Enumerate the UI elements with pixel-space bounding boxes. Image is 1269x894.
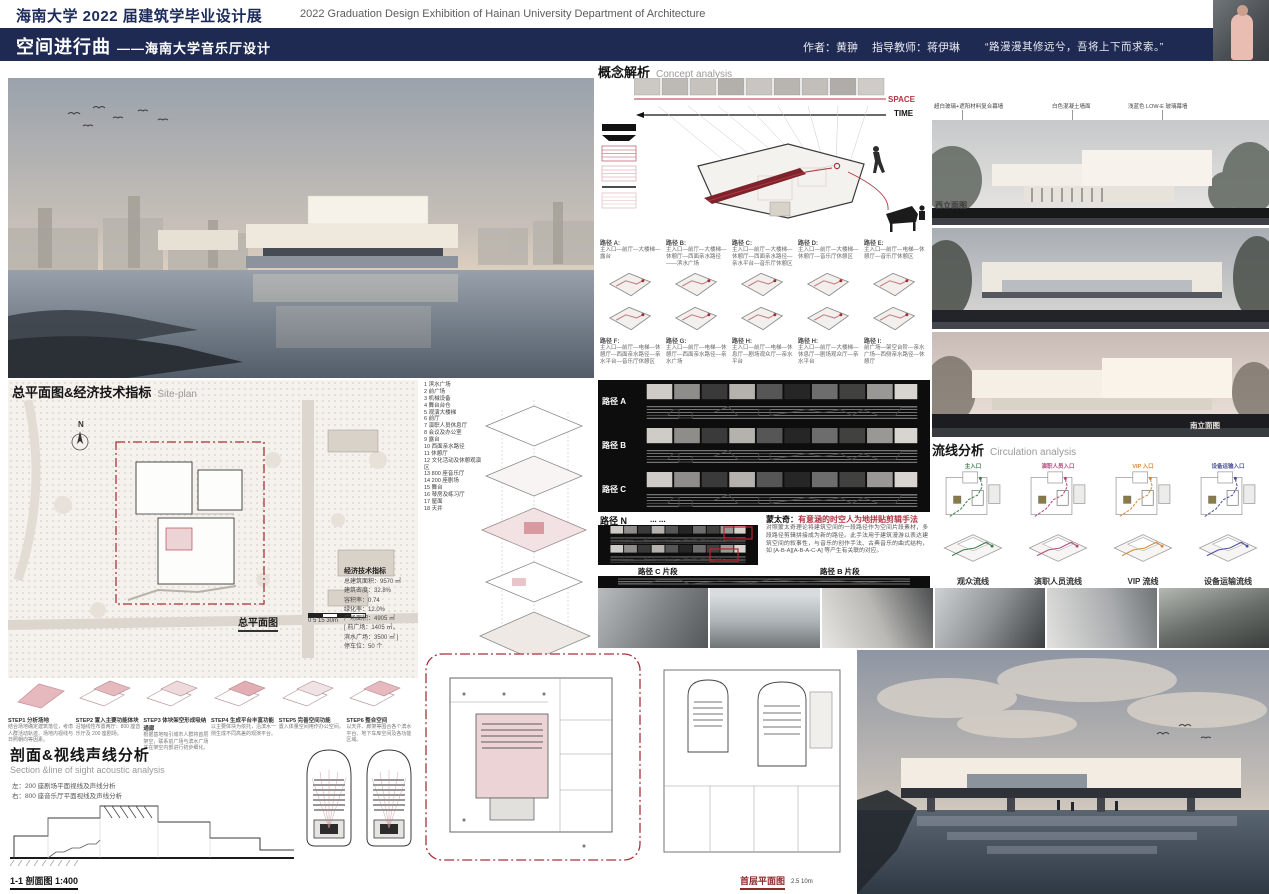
- project-subtitle: ——海南大学音乐厅设计: [117, 41, 271, 56]
- path-item-h2: 路径 H: 主入口—前厅—大楼梯—休息厅—剧场观众厅—亲水平台: [798, 336, 860, 366]
- massing-step-5: STEP5 完善空间功能 置入体量空间用作办公空间。: [279, 676, 345, 744]
- first-floor-plan: [420, 650, 648, 870]
- circulation-title-en: Circulation analysis: [990, 447, 1076, 458]
- circulation-audience: 主入口 观众流线: [932, 462, 1014, 587]
- path-n-montage: 路径 N ... ... 蒙太奇：有意涵的时空人为地拼贴剪辑手法 对照蒙太奇理论…: [598, 514, 930, 588]
- first-floor-scale: 2.5 10m: [791, 879, 813, 885]
- advisor-label: 指导教师：蒋伊琳: [872, 39, 960, 55]
- motto-quote: “路漫漫其修远兮，吾将上下而求索。”: [985, 39, 1164, 54]
- step-desc: 以天井、廊架等围合各个滨水平台、地下车库空间及各功能区域。: [346, 724, 412, 744]
- exploded-axon-drawing: [472, 390, 596, 674]
- path-n-panel: [598, 525, 758, 565]
- concept-legend-glyphs: [600, 124, 640, 216]
- sequence-strip: [638, 384, 926, 422]
- concert-hall-plan-acoustic: [362, 744, 416, 866]
- siteplan-section: 总平面图&经济技术指标Site-plan N: [8, 380, 418, 678]
- concept-diagram: [638, 106, 930, 236]
- massing-thumb: [143, 676, 205, 710]
- siteplan-caption: 总平面图: [238, 614, 278, 632]
- sequence-row-b: 路径 B: [598, 426, 930, 468]
- step-label: STEP2 置入主要功能体块: [76, 716, 142, 724]
- montage-subtitle: 有意涵的时空人为地拼贴剪辑手法: [798, 515, 918, 524]
- path-thumb: [734, 302, 788, 334]
- circulation-plan: [1023, 470, 1093, 522]
- circulation-label: 演职人员流线: [1017, 576, 1099, 587]
- render-thumbnail: [710, 588, 820, 648]
- figure-head: [1237, 5, 1248, 16]
- section-analysis-title-cn: 剖面&视线声线分析: [10, 744, 165, 765]
- path-label: 路径 G:: [666, 336, 728, 345]
- massing-thumb: [279, 676, 341, 710]
- path-desc: 主入口—前厅—大楼梯—休息厅—剧场观众厅—亲水平台: [798, 345, 860, 366]
- step-label: STEP4 生成平台丰富功能: [211, 716, 277, 724]
- massing-thumb: [346, 676, 408, 710]
- render-thumbnail: [1159, 588, 1269, 648]
- step-desc: 结合场地确定建筑落位，考虑人群活动轨迹、场地内视线与日照朝向等因素。: [8, 724, 74, 744]
- sequence-strip: [638, 472, 926, 510]
- pianist-icon: [886, 205, 925, 232]
- render-thumbnail: [822, 588, 932, 648]
- massing-thumb: [76, 676, 138, 710]
- section-analysis-title-en: Section &line of sight acoustic analysis: [10, 765, 165, 775]
- step-label: STEP1 分析场地: [8, 716, 74, 724]
- montage-highlights: [598, 525, 758, 565]
- circulation-equipment: 设备运输入口 设备运输流线: [1187, 462, 1269, 587]
- path-thumb: [602, 302, 656, 334]
- siteplan-title-cn: 总平面图&经济技术指标: [12, 385, 151, 400]
- first-floor-label: 首层平面图: [740, 874, 785, 890]
- massing-step-6: STEP6 整合空间 以天井、廊架等围合各个滨水平台、地下车库空间及各功能区域。: [346, 676, 412, 744]
- path-desc: 主入口—前厅—大楼梯—休憩厅—音乐厅休憩区: [798, 247, 860, 261]
- note-left: 左：200 座剧场平面视线及声线分析: [12, 782, 122, 792]
- project-title-main: 空间进行曲: [16, 37, 111, 57]
- path-item-e: 路径 E: 主入口—前厅—电梯—休憩厅—音乐厅休憩区: [864, 238, 926, 261]
- corner-photo: [1213, 0, 1269, 61]
- path-item-i: 路径 I: 前广场—架空台阶—亲水广场—西侧亲水路径—休憩厅: [864, 336, 926, 366]
- render-thumbnail-strip: [598, 588, 1269, 648]
- massing-thumb: [211, 676, 273, 710]
- circulation-axon: [937, 527, 1009, 569]
- path-thumb: [668, 268, 722, 300]
- exhibition-title-en: 2022 Graduation Design Exhibition of Hai…: [300, 8, 705, 20]
- circulation-axon: [1022, 527, 1094, 569]
- path-label: 路径 H:: [732, 336, 794, 345]
- path-label: 路径 H:: [798, 336, 860, 345]
- circulation-title: 流线分析Circulation analysis: [932, 440, 1269, 460]
- step-desc: 以主要体块为依托，沿滨水一侧生成不同高差的观演平台。: [211, 724, 277, 737]
- step-desc: 沿轴线性布置两厅：800 座音乐厅及 200 座剧场。: [76, 724, 142, 737]
- circulation-label: 设备运输流线: [1187, 576, 1269, 587]
- author-label: 作者：黄翀: [803, 39, 858, 55]
- space-axis-label: SPACE: [888, 95, 915, 104]
- material-annotation-2: 白色混凝土墙面: [1052, 102, 1091, 110]
- path-label: 路径 B:: [666, 238, 728, 247]
- path-n-dots: ... ...: [650, 515, 666, 524]
- massing-step-2: STEP2 置入主要功能体块 沿轴线性布置两厅：800 座音乐厅及 200 座剧…: [76, 676, 142, 744]
- siteplan-scale-text: 0 5 15 30m: [308, 618, 338, 624]
- path-thumb: [602, 268, 656, 300]
- section-drawing-label: 1-1 剖面图 1:400: [10, 874, 78, 890]
- exhibition-title-cn: 海南大学 2022 届建筑学毕业设计展: [16, 5, 262, 26]
- path-label: 路径 C:: [732, 238, 794, 247]
- montage-title: 蒙太奇：有意涵的时空人为地拼贴剪辑手法: [766, 514, 918, 525]
- path-label: 路径 F:: [600, 336, 662, 345]
- indicator-line: 广场面积：4905 ㎡: [344, 615, 418, 624]
- elevation-render-2: [932, 228, 1269, 329]
- path-item-c: 路径 C: 主入口—前厅—大楼梯—休憩厅—西面亲水路径—亲水平台—音乐厅休憩区: [732, 238, 794, 268]
- montage-body: 对照蒙太奇理论将建筑空间的一段路径作为空间片段素材，多段路径剪辑拼接成为新的路径…: [766, 525, 928, 556]
- circulation-title-cn: 流线分析: [932, 443, 984, 458]
- sequence-strip: [618, 577, 910, 587]
- sequence-row-label: 路径 A: [602, 396, 636, 407]
- section-drawing: [8, 794, 296, 872]
- circulation-section: 流线分析Circulation analysis 主入口 观众流线 演职人员入口…: [932, 440, 1269, 586]
- sequence-row-c: 路径 C: [598, 470, 930, 512]
- massing-step-3: STEP3 体块架空形成吸纳通廊 根据基地吸引城市人群将首层架空，联系前广场与滨…: [143, 676, 209, 744]
- path-item-b: 路径 B: 主入口—前厅—大楼梯—休憩厅—西面亲水路径——滨水广场: [666, 238, 728, 268]
- path-desc: 前广场—架空台阶—亲水广场—西侧亲水路径—休憩厅: [864, 345, 926, 366]
- section-analysis-title: 剖面&视线声线分析 Section &line of sight acousti…: [10, 744, 165, 775]
- path-thumb: [734, 268, 788, 300]
- path-label: 路径 A:: [600, 238, 662, 247]
- path-label: 路径 D:: [798, 238, 860, 247]
- indicator-line: 绿化率：12.0%: [344, 606, 418, 615]
- legend-item: 1 滨水广场: [424, 382, 486, 389]
- path-desc: 主入口—前厅—电梯—休憩厅—音乐厅休憩区: [864, 247, 926, 261]
- poster-sheet: 海南大学 2022 届建筑学毕业设计展 2022 Graduation Desi…: [0, 0, 1269, 894]
- circulation-axon: [1192, 527, 1264, 569]
- path-desc: 主入口—前厅—电梯—休憩厅—西面亲水路径—亲水广场: [666, 345, 728, 366]
- circulation-plan: [1193, 470, 1263, 522]
- material-annotation-3: 浅蓝色 LOW-E 玻璃幕墙: [1128, 102, 1188, 110]
- entrance-label: 演职人员入口: [1017, 462, 1099, 470]
- tech-indicators-title: 经济技术指标: [344, 566, 418, 576]
- tech-indicators: 经济技术指标 总建筑面积：9570 ㎡ 建筑密度：32.8% 容积率：0.74 …: [344, 566, 418, 652]
- path-item-f: 路径 F: 主入口—前厅—电梯—休憩厅—西面亲水路径—亲水平台—音乐厅休憩区: [600, 336, 662, 366]
- west-elevation-block: 超白玻璃+遮阳材料复合幕墙 白色混凝土墙面 浅蓝色 LOW-E 玻璃幕墙 西立面…: [932, 62, 1269, 225]
- path-thumb: [800, 268, 854, 300]
- path-desc: 主入口—前厅—大楼梯—休憩厅—西面亲水路径—亲水平台—音乐厅休憩区: [732, 247, 794, 268]
- first-floor-caption: 首层平面图 2.5 10m: [740, 874, 813, 890]
- render-thumbnail: [1047, 588, 1157, 648]
- sequence-row-a: 路径 A: [598, 382, 930, 424]
- south-elevation-block: 南立面图: [932, 332, 1269, 437]
- massing-steps: STEP1 分析场地 结合场地确定建筑落位，考虑人群活动轨迹、场地内视线与日照朝…: [8, 676, 412, 744]
- project-titlebar: 空间进行曲 ——海南大学音乐厅设计 作者：黄翀 指导教师：蒋伊琳 “路漫漫其修远…: [0, 28, 1269, 61]
- exhibition-header: 海南大学 2022 届建筑学毕业设计展 2022 Graduation Desi…: [0, 0, 1269, 28]
- path-item-g: 路径 G: 主入口—前厅—电梯—休憩厅—西面亲水路径—亲水广场: [666, 336, 728, 366]
- west-elevation-label: 西立面图: [935, 200, 967, 211]
- path-thumb: [800, 302, 854, 334]
- indicator-line: [ 前广场：1405 ㎡，: [344, 624, 418, 633]
- circulation-label: VIP 流线: [1102, 576, 1184, 587]
- path-item-a: 路径 A: 主入口—前厅—大楼梯—露台: [600, 238, 662, 261]
- path-item-h: 路径 H: 主入口—前厅—电梯—休息厅—剧场观众厅—亲水平台: [732, 336, 794, 366]
- entrance-label: VIP 入口: [1102, 462, 1184, 470]
- sequence-row-label: 路径 C: [602, 484, 636, 495]
- siteplan-title: 总平面图&经济技术指标Site-plan: [12, 382, 197, 402]
- circulation-label: 观众流线: [932, 576, 1014, 587]
- south-elevation-label: 南立面图: [1190, 420, 1220, 431]
- material-annotation-1: 超白玻璃+遮阳材料复合幕墙: [934, 102, 1003, 110]
- path-desc: 主入口—前厅—电梯—休息厅—剧场观众厅—亲水平台: [732, 345, 794, 366]
- path-desc: 主入口—前厅—大楼梯—休憩厅—西面亲水路径——滨水广场: [666, 247, 728, 268]
- massing-step-1: STEP1 分析场地 结合场地确定建筑落位，考虑人群活动轨迹、场地内视线与日照朝…: [8, 676, 74, 744]
- circulation-plan: [1108, 470, 1178, 522]
- west-elevation-render: [932, 120, 1269, 225]
- sequence-strip: [638, 428, 926, 466]
- fragment-strip: [598, 576, 930, 588]
- step-label: STEP3 体块架空形成吸纳通廊: [143, 716, 209, 732]
- path-label: 路径 I:: [864, 336, 926, 345]
- step-label: STEP6 整合空间: [346, 716, 412, 724]
- exploded-axon-section: 1 滨水广场 2 前广场 3 机械设备 4 舞台台仓 5 观演大楼梯 6 前厅 …: [420, 380, 596, 678]
- project-title: 空间进行曲 ——海南大学音乐厅设计: [16, 33, 271, 59]
- step-desc: 置入体量空间用作办公空间。: [279, 724, 345, 731]
- path-thumb: [866, 268, 920, 300]
- entrance-label: 设备运输入口: [1187, 462, 1269, 470]
- massing-step-4: STEP4 生成平台丰富功能 以主要体块为依托，沿滨水一侧生成不同高差的观演平台…: [211, 676, 277, 744]
- second-floor-plan: [650, 656, 855, 868]
- montage-term: 蒙太奇：: [766, 515, 798, 524]
- indicator-line: 建筑密度：32.8%: [344, 587, 418, 596]
- entrance-label: 主入口: [932, 462, 1014, 470]
- figure-silhouette: [1231, 14, 1253, 60]
- concept-section: 概念解析Concept analysis SPACE TIME: [598, 62, 930, 378]
- render-thumbnail: [598, 588, 708, 648]
- path-thumb: [668, 302, 722, 334]
- sequence-row-label: 路径 B: [602, 440, 636, 451]
- render-thumbnail: [935, 588, 1045, 648]
- circulation-axon: [1107, 527, 1179, 569]
- path-sequence-panel: 路径 A 路径 B 路径 C: [598, 380, 930, 512]
- indicator-line: 滨水广场：3500 ㎡ ]: [344, 634, 418, 643]
- circulation-vip: VIP 入口 VIP 流线: [1102, 462, 1184, 587]
- walking-man-icon: [873, 146, 885, 173]
- theater-plan-acoustic: [302, 744, 356, 866]
- path-desc: 主入口—前厅—大楼梯—露台: [600, 247, 662, 261]
- path-thumb: [866, 302, 920, 334]
- path-label: 路径 E:: [864, 238, 926, 247]
- waterfront-render: [857, 650, 1269, 894]
- path-desc: 主入口—前厅—电梯—休憩厅—西面亲水路径—亲水平台—音乐厅休憩区: [600, 345, 662, 366]
- hero-render: [8, 78, 594, 378]
- massing-thumb: [8, 676, 70, 710]
- siteplan-title-en: Site-plan: [157, 389, 196, 400]
- circulation-plan: [938, 470, 1008, 522]
- circulation-staff: 演职人员入口 演职人员流线: [1017, 462, 1099, 587]
- path-item-d: 路径 D: 主入口—前厅—大楼梯—休憩厅—音乐厅休憩区: [798, 238, 860, 261]
- indicator-line: 总建筑面积：9570 ㎡: [344, 578, 418, 587]
- indicator-line: 停车位：50 个: [344, 643, 418, 652]
- indicator-line: 容积率：0.74: [344, 597, 418, 606]
- step-label: STEP5 完善空间功能: [279, 716, 345, 724]
